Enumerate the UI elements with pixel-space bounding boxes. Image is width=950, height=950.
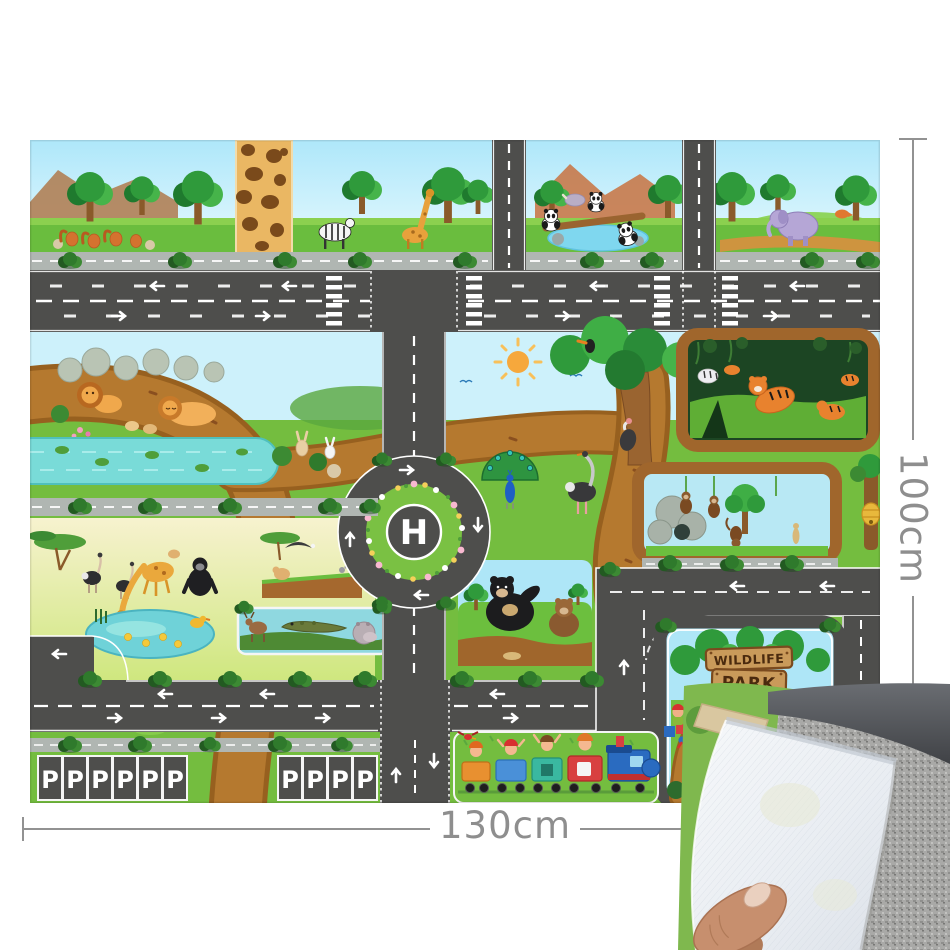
croc-hippo-panel (238, 608, 388, 654)
tiger-scene (682, 334, 874, 446)
width-dimension-tick-left (22, 817, 24, 841)
height-dimension-label: 100cm (892, 440, 935, 596)
monkey-scene (638, 468, 836, 558)
rhino (565, 194, 585, 206)
vertical-road-2 (682, 140, 716, 270)
kids-train-panel (454, 732, 660, 803)
product-photo: H (0, 0, 950, 950)
parking-stall-label: P (356, 766, 374, 794)
parking-stall-label: P (66, 766, 84, 794)
toucan (585, 339, 595, 353)
height-dimension-tick-top (899, 138, 927, 140)
parking-stall-label: P (91, 766, 109, 794)
sign-line1: WILDLIFE (714, 651, 785, 668)
width-dimension-label: 130cm (430, 804, 580, 847)
parking-stall-label: P (281, 766, 299, 794)
parking-stall-label: P (331, 766, 349, 794)
helipad-label: H (400, 513, 428, 553)
sleeping-meerkat (503, 652, 521, 660)
peeled-corner (640, 680, 950, 950)
bear-scene (458, 560, 592, 666)
parking-group-left: P P P P P P (38, 756, 187, 800)
fawn (168, 550, 180, 559)
vertical-road-1 (492, 140, 526, 270)
fox (835, 210, 849, 219)
parking-stall-label: P (166, 766, 184, 794)
river (30, 438, 278, 484)
parking-stall-label: P (41, 766, 59, 794)
giraffe-tree-trunk (236, 140, 292, 254)
parking-stall-label: P (141, 766, 159, 794)
main-road (30, 270, 880, 332)
sun (495, 339, 541, 385)
parking-group-right: P P P P (278, 756, 377, 800)
parking-stall-label: P (116, 766, 134, 794)
white-tiger (698, 369, 718, 383)
meerkat (793, 528, 800, 544)
top-forest-strip (30, 140, 880, 270)
parking-stall-label: P (306, 766, 324, 794)
duck-pond (86, 609, 214, 658)
